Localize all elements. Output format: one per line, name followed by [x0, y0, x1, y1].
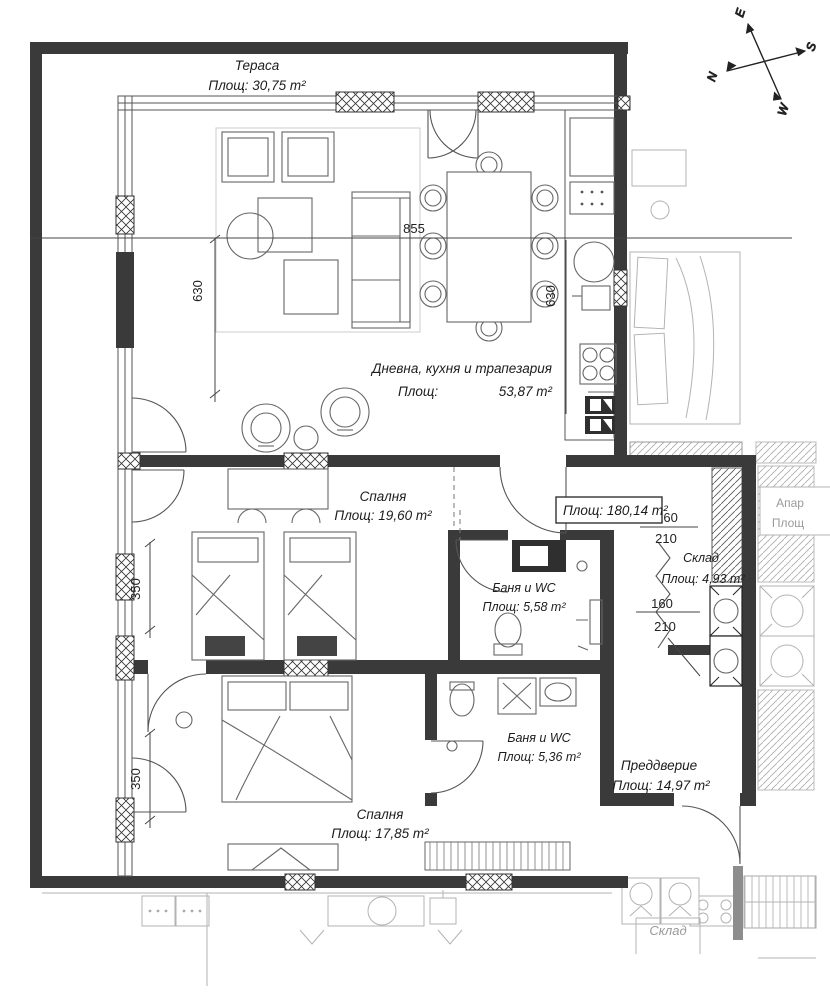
adjacent-apartment-line1: Апар — [776, 496, 804, 510]
bedroom1-area: Площ: 19,60 m² — [334, 508, 432, 523]
shaft-symbols-gray — [760, 586, 814, 686]
living-area-label: Площ: — [398, 384, 438, 399]
bath2-area: Площ: 5,36 m² — [497, 750, 581, 764]
bath2-name: Баня и WC — [507, 731, 571, 745]
hall-area: Площ: 14,97 m² — [612, 778, 710, 793]
adjacent-apartment-box: Апар Площ — [760, 487, 830, 535]
bedroom2-area: Площ: 17,85 m² — [331, 826, 429, 841]
bath1-name: Баня и WC — [492, 581, 556, 595]
dim-630-kitchen: 630 — [543, 285, 558, 307]
terrace-area: Площ: 30,75 m² — [208, 78, 306, 93]
living-room-furniture — [216, 128, 558, 452]
bedroom1-name: Спалня — [360, 489, 407, 504]
total-area-label: Площ: 180,14 m² — [563, 503, 668, 518]
storage-name: Склад — [683, 551, 719, 565]
dim-210-b: 210 — [654, 619, 676, 634]
living-area-value: 53,87 m² — [499, 384, 553, 399]
living-name: Дневна, кухня и трапезария — [370, 361, 552, 376]
compass-rose: E S N W — [704, 6, 819, 117]
hall-name: Преддверие — [621, 758, 697, 773]
adjacent-storage-label: Склад — [649, 923, 686, 938]
kitchen-fixtures — [565, 110, 616, 440]
bedroom2-name: Спалня — [357, 807, 404, 822]
compass-e: E — [732, 6, 748, 19]
compass-w: W — [775, 101, 792, 118]
terrace-name: Тераса — [235, 58, 280, 73]
dimension-lines: 855 630 630 350 350 160 210 160 210 — [30, 221, 792, 828]
dim-630-left: 630 — [190, 280, 205, 302]
floor-plan-drawing: Склад Апар Площ — [0, 0, 830, 1000]
floor-plan-canvas: Склад Апар Площ — [0, 0, 830, 1000]
dim-350-lower: 350 — [128, 768, 143, 790]
total-area-box: Площ: 180,14 m² — [556, 497, 668, 523]
dim-210-a: 210 — [655, 531, 677, 546]
dim-350-upper: 350 — [128, 578, 143, 600]
bath1-fixtures — [494, 540, 602, 655]
bath1-area: Площ: 5,58 m² — [482, 600, 566, 614]
storage-area: Площ: 4,93 m² — [661, 572, 745, 586]
adjacent-apartment-line2: Площ — [772, 516, 804, 530]
compass-n: N — [704, 70, 720, 83]
dim-855: 855 — [403, 221, 425, 236]
dim-160-b: 160 — [651, 596, 673, 611]
bedroom1-furniture — [192, 469, 356, 660]
shaft-symbols-dark — [710, 586, 742, 686]
